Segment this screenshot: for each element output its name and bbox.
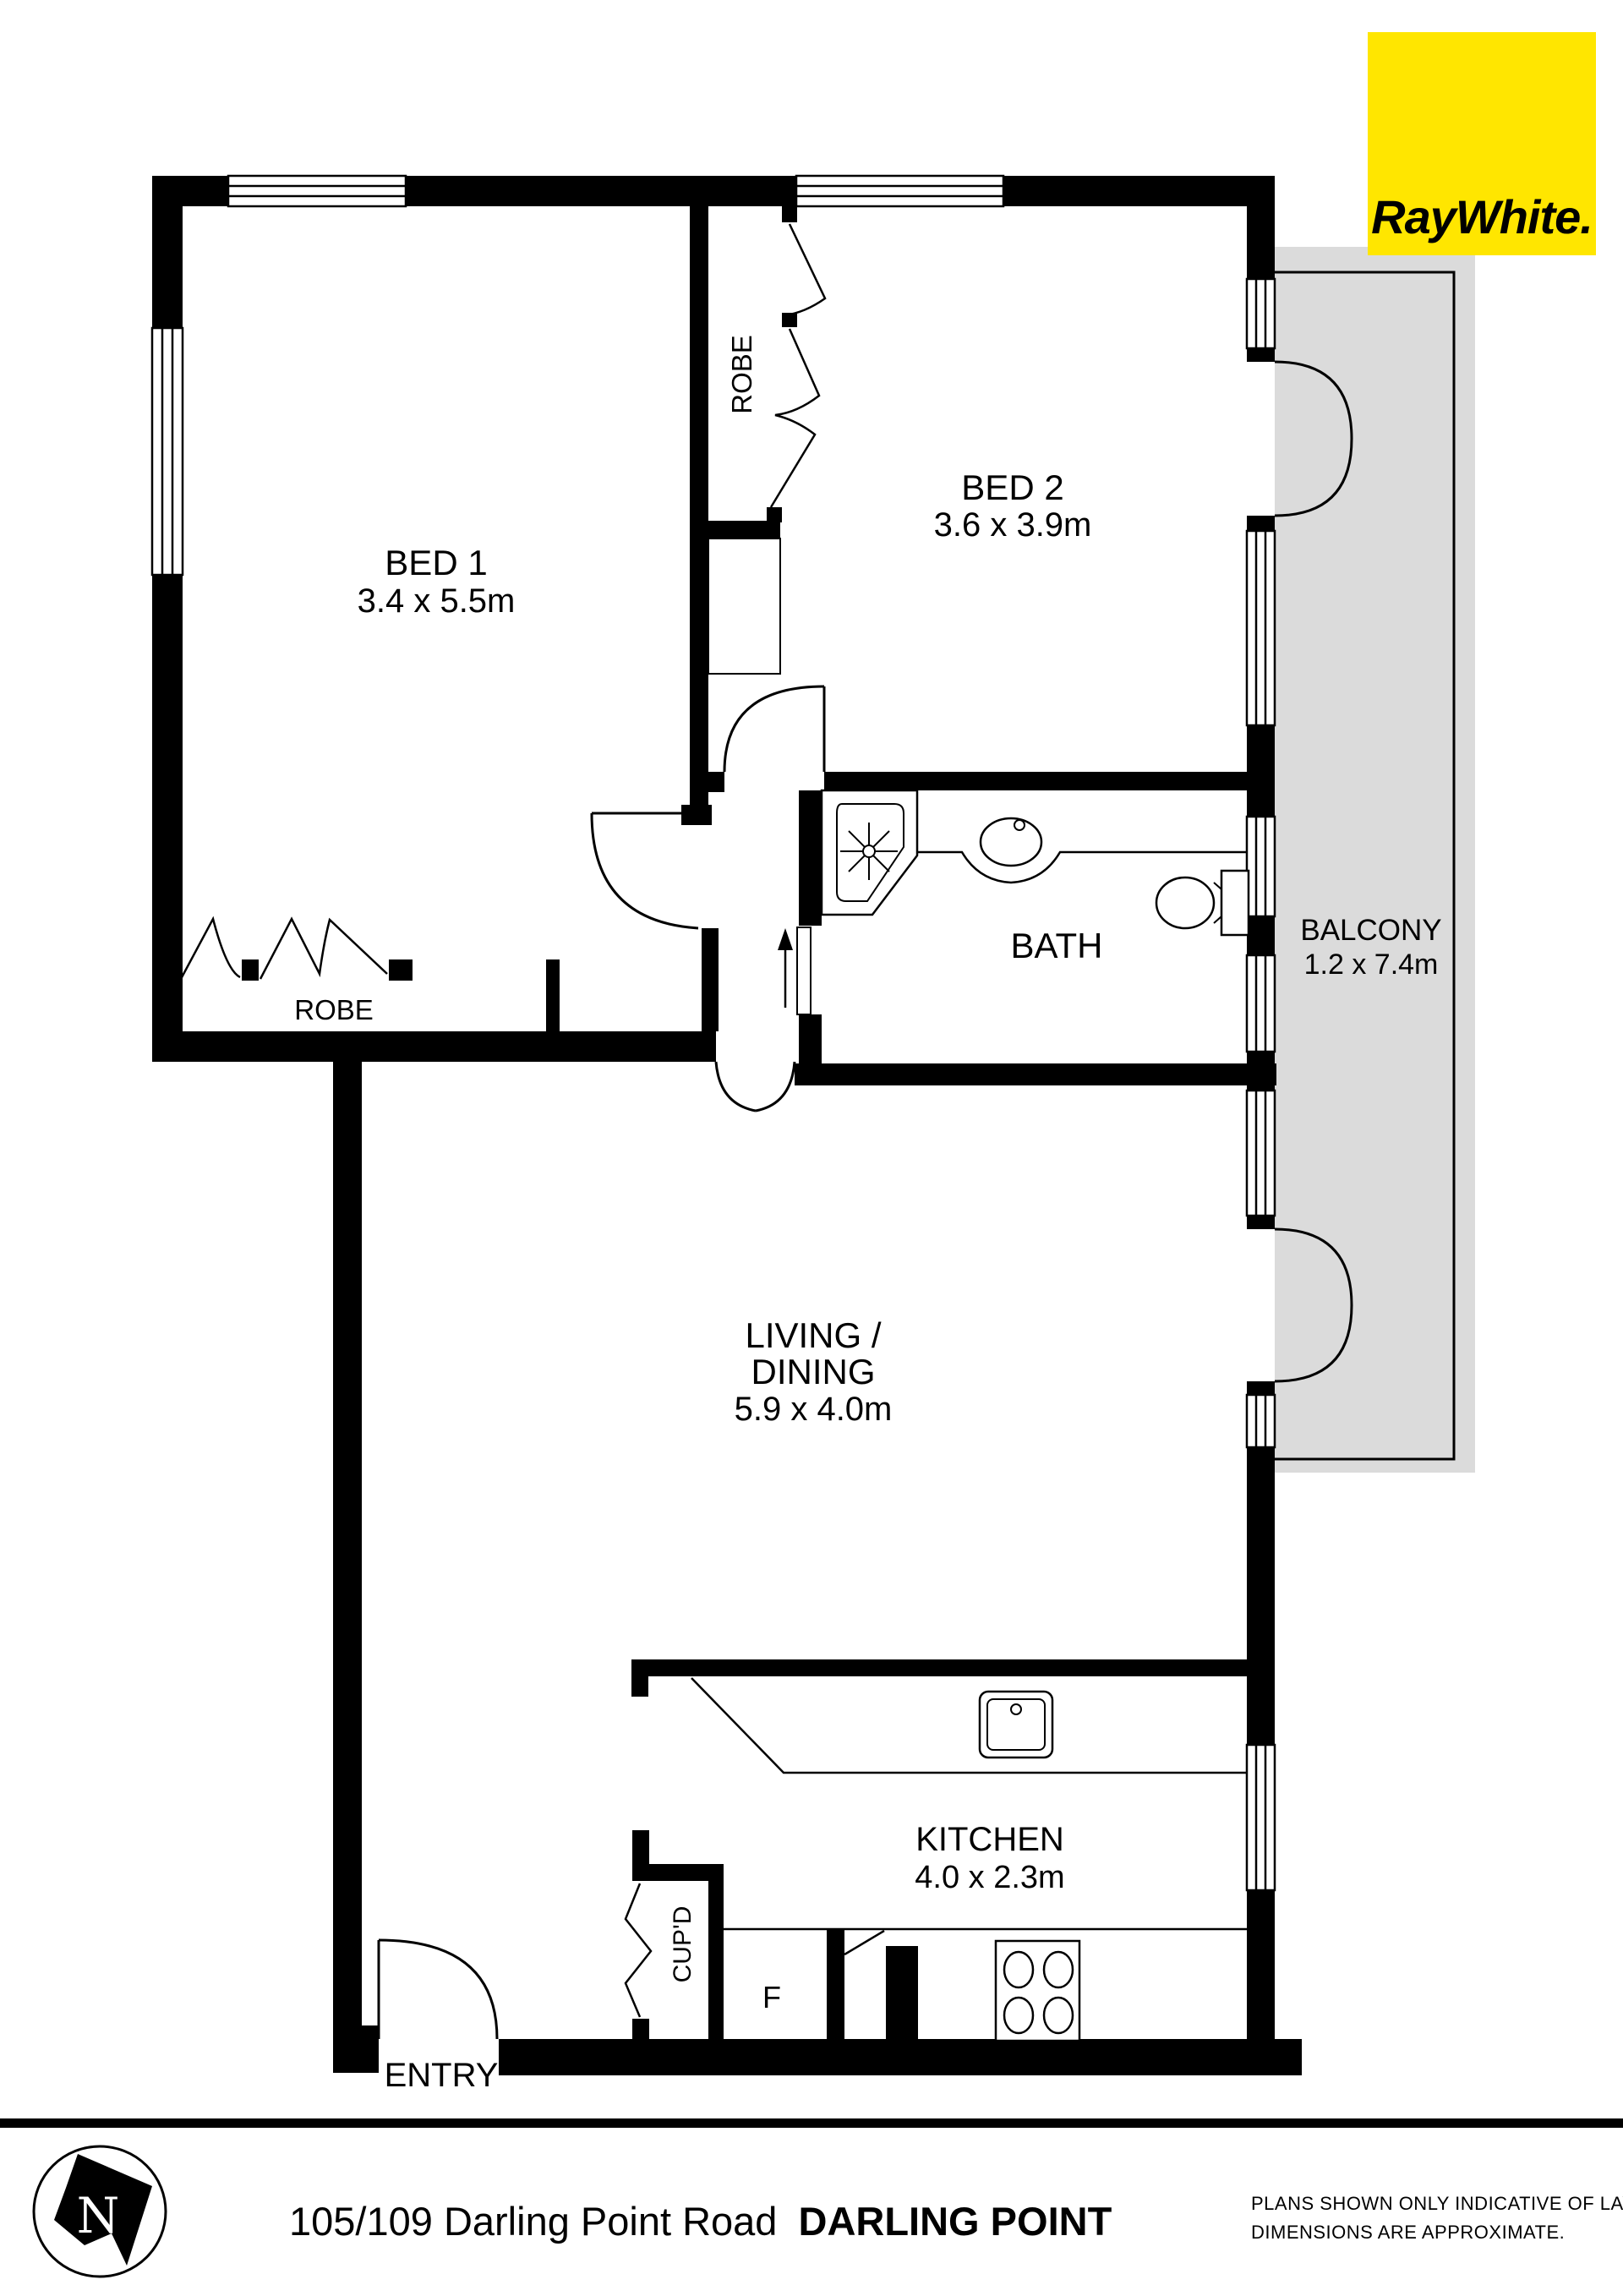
address-suburb: DARLING POINT	[799, 2199, 1112, 2244]
living-label-2: DINING	[751, 1352, 876, 1391]
robe-bed1-bifold	[181, 919, 240, 979]
wall	[631, 1659, 1247, 1676]
wall	[690, 521, 780, 539]
wall	[690, 205, 708, 805]
cupboard-bifold	[626, 1883, 651, 2017]
wall	[1247, 205, 1275, 279]
north-compass-icon: N	[34, 2146, 166, 2277]
kitchen-sink	[980, 1692, 1052, 1758]
cooktop	[996, 1941, 1079, 2041]
balcony-label: BALCONY	[1300, 914, 1441, 947]
living-dims: 5.9 x 4.0m	[735, 1391, 893, 1428]
robe-bed1-label: ROBE	[294, 994, 374, 1025]
wall	[767, 507, 782, 522]
shower-drain-star	[840, 823, 898, 880]
balcony-floor	[1275, 247, 1475, 1473]
wall	[389, 959, 413, 981]
bed1-label: BED 1	[385, 543, 487, 582]
bed2-label: BED 2	[961, 467, 1063, 507]
window-bed1-top	[228, 176, 406, 206]
bifold-doors	[181, 224, 884, 2017]
balcony-area	[1275, 247, 1475, 1473]
wall	[242, 959, 259, 981]
living-label-1: LIVING /	[745, 1315, 881, 1355]
bath-entry-arrow	[778, 928, 793, 1008]
wall	[1247, 1890, 1275, 2075]
exterior-walls	[152, 176, 1302, 2075]
wall	[152, 575, 183, 1062]
wall	[708, 1864, 724, 2042]
wall	[152, 1031, 716, 1062]
wall	[333, 1062, 362, 2042]
wall	[827, 1929, 844, 2042]
bed1-door	[592, 813, 698, 928]
wall	[681, 805, 712, 825]
doors	[379, 362, 1352, 2039]
cupboard-label: CUP'D	[669, 1906, 697, 1983]
wall	[824, 772, 843, 792]
bath-sliding-door	[797, 927, 811, 1014]
wall	[1247, 1216, 1275, 1229]
wall	[1247, 1447, 1275, 1745]
hall-double-doors	[716, 1062, 795, 1111]
logo-wordmark: RayWhite.	[1371, 190, 1593, 243]
wall	[406, 176, 796, 206]
vanity-basin	[981, 818, 1041, 866]
wall	[799, 790, 822, 926]
vanity-counter	[917, 852, 1247, 883]
shower	[822, 790, 917, 915]
wall	[499, 2039, 1302, 2075]
wall	[704, 772, 724, 792]
robe-bed2-bifold	[771, 329, 819, 507]
wall	[1247, 516, 1275, 531]
wall	[152, 176, 183, 328]
wall	[632, 2019, 649, 2042]
wall	[152, 959, 179, 981]
kitchen-bench-upper	[691, 1678, 1247, 1773]
footer: N 105/109 Darling Point Road DARLING POI…	[0, 2118, 1623, 2277]
footer-address: 105/109 Darling Point Road DARLING POINT	[289, 2199, 1112, 2244]
toilet	[1156, 871, 1249, 935]
bed1-dims: 3.4 x 5.5m	[358, 582, 516, 620]
wall	[546, 959, 560, 1031]
wall	[333, 2025, 379, 2073]
wall	[886, 1946, 918, 2042]
entry-door	[379, 1940, 497, 2039]
kitchen-label: KITCHEN	[915, 1821, 1064, 1858]
robe-bed1-bifold	[260, 919, 387, 979]
balcony-dims: 1.2 x 7.4m	[1304, 948, 1439, 981]
bath-label: BATH	[1011, 926, 1103, 965]
disclaimer-line-2: DIMENSIONS ARE APPROXIMATE.	[1251, 2222, 1565, 2243]
bed2-door	[724, 686, 824, 772]
wall	[795, 1063, 1276, 1085]
disclaimer-line-1: PLANS SHOWN ONLY INDICATIVE OF LAYOUT.	[1251, 2193, 1623, 2214]
wall	[702, 928, 719, 1031]
kitchen-dims: 4.0 x 2.3m	[915, 1860, 1064, 1895]
robe-bed2-label: ROBE	[726, 335, 757, 414]
window-bed1-left	[152, 328, 183, 575]
wall	[843, 772, 1247, 790]
floor-plan: BED 1 3.4 x 5.5m BED 2 3.6 x 3.9m BATH B…	[0, 0, 1623, 2296]
entry-label: ENTRY	[385, 2057, 499, 2094]
hall-nook	[708, 538, 780, 674]
wall	[1247, 1381, 1275, 1395]
robe-bed2-bifold	[784, 224, 825, 315]
door-gap	[1247, 1229, 1275, 1381]
footer-divider	[0, 2118, 1623, 2128]
wall	[1003, 176, 1275, 206]
window-bed2-top	[796, 176, 1003, 206]
ray-white-logo: RayWhite.	[1368, 32, 1596, 255]
bed2-dims: 3.6 x 3.9m	[934, 506, 1092, 544]
wall	[799, 1014, 822, 1063]
kitchen-niche-door	[844, 1931, 884, 1954]
fridge-label: F	[762, 1980, 781, 2014]
wall	[1247, 348, 1275, 362]
wall	[631, 1676, 648, 1697]
wall	[1247, 725, 1275, 817]
thin-outlines	[691, 538, 1247, 1929]
wall	[782, 205, 797, 222]
compass-north-letter: N	[77, 2187, 120, 2244]
address-street: 105/109 Darling Point Road	[289, 2199, 777, 2244]
door-gap	[1247, 362, 1275, 516]
interior-walls	[152, 205, 1276, 2042]
wall	[1247, 916, 1275, 955]
